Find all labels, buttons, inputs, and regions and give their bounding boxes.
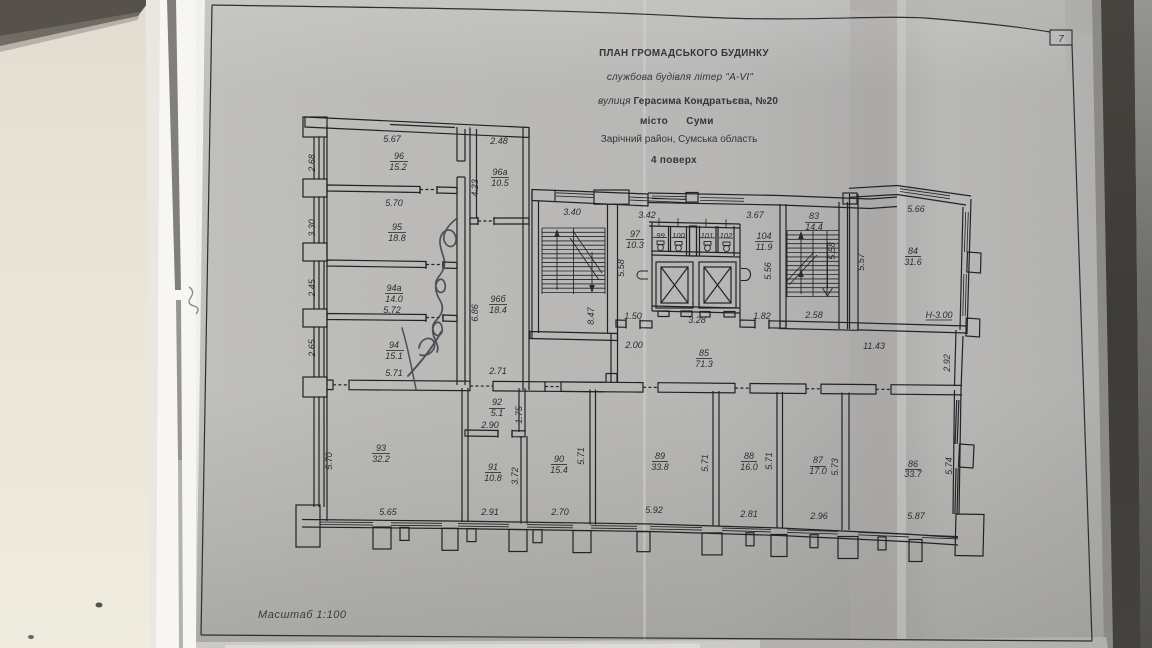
svg-text:5.56: 5.56 (763, 262, 773, 280)
svg-text:5.57: 5.57 (856, 252, 866, 271)
svg-text:99: 99 (656, 231, 665, 240)
svg-text:службова будівля літер "А-VI": службова будівля літер "А-VI" (607, 71, 754, 83)
svg-text:8.47: 8.47 (586, 306, 596, 325)
svg-text:5.58: 5.58 (616, 259, 626, 277)
svg-text:10.3: 10.3 (626, 240, 644, 250)
svg-text:93: 93 (376, 443, 386, 453)
svg-text:104: 104 (756, 231, 771, 241)
svg-text:5.92: 5.92 (645, 505, 663, 515)
svg-text:97: 97 (630, 229, 641, 239)
svg-text:2.00: 2.00 (624, 340, 643, 350)
svg-text:10.8: 10.8 (484, 473, 502, 483)
svg-text:Масштаб 1:100: Масштаб 1:100 (258, 609, 347, 621)
svg-text:5.58: 5.58 (827, 242, 837, 260)
svg-text:3.42: 3.42 (638, 210, 656, 220)
svg-text:5.71: 5.71 (385, 368, 403, 378)
svg-text:83: 83 (809, 211, 819, 221)
svg-text:17.0: 17.0 (809, 466, 827, 476)
svg-text:вулиця Герасима Кондратьєва, №: вулиця Герасима Кондратьєва, №20 (598, 96, 778, 107)
svg-text:2.90: 2.90 (480, 420, 499, 430)
svg-text:89: 89 (655, 451, 665, 461)
svg-text:5.1: 5.1 (491, 408, 504, 418)
svg-text:15.1: 15.1 (385, 351, 403, 361)
svg-text:1.50: 1.50 (624, 311, 642, 321)
svg-text:100: 100 (672, 231, 685, 240)
svg-text:88: 88 (744, 451, 754, 461)
svg-text:5.73: 5.73 (830, 458, 840, 476)
svg-text:15.2: 15.2 (389, 162, 407, 172)
svg-text:3.40: 3.40 (563, 207, 581, 217)
svg-text:94а: 94а (386, 283, 401, 293)
svg-text:5.67: 5.67 (383, 134, 402, 144)
svg-text:Н-3.00: Н-3.00 (925, 310, 952, 320)
svg-text:2.96: 2.96 (809, 511, 828, 521)
svg-text:5.87: 5.87 (907, 511, 926, 521)
svg-text:2.71: 2.71 (488, 366, 507, 376)
svg-text:5.70: 5.70 (324, 452, 334, 470)
svg-text:5.71: 5.71 (700, 454, 710, 472)
svg-text:2.58: 2.58 (804, 310, 823, 320)
svg-text:Зарічний район, Сумська област: Зарічний район, Сумська область (601, 133, 758, 145)
svg-text:5.70: 5.70 (385, 198, 403, 208)
svg-text:11.43: 11.43 (863, 341, 885, 351)
svg-text:102: 102 (720, 231, 733, 240)
svg-text:16.0: 16.0 (740, 462, 758, 472)
svg-text:84: 84 (908, 246, 918, 256)
svg-text:7: 7 (1058, 34, 1064, 45)
svg-text:3.72: 3.72 (510, 467, 520, 485)
svg-text:33.7: 33.7 (904, 469, 923, 479)
svg-text:11.9: 11.9 (756, 242, 773, 252)
svg-text:1.82: 1.82 (753, 311, 771, 321)
svg-text:2.92: 2.92 (942, 354, 952, 373)
svg-text:5.74: 5.74 (944, 457, 954, 475)
svg-text:5.71: 5.71 (764, 452, 774, 470)
svg-text:85: 85 (699, 348, 710, 358)
svg-text:33.8: 33.8 (651, 462, 669, 472)
svg-text:2.68: 2.68 (307, 154, 317, 173)
svg-text:2.91: 2.91 (480, 507, 499, 517)
svg-text:15.4: 15.4 (550, 465, 568, 475)
svg-text:90: 90 (554, 454, 564, 464)
svg-text:94: 94 (389, 340, 399, 350)
svg-text:4.23: 4.23 (470, 179, 480, 197)
svg-text:6.86: 6.86 (470, 304, 480, 322)
svg-text:95: 95 (392, 222, 403, 232)
svg-text:2.45: 2.45 (307, 278, 317, 298)
svg-text:87: 87 (813, 455, 824, 465)
svg-text:14.0: 14.0 (385, 294, 403, 304)
svg-text:71.3: 71.3 (695, 359, 713, 369)
svg-text:96а: 96а (492, 167, 507, 177)
svg-text:4 поверх: 4 поверх (651, 155, 697, 166)
svg-text:5.66: 5.66 (907, 204, 925, 214)
svg-text:92: 92 (492, 397, 502, 407)
svg-text:18.4: 18.4 (489, 305, 507, 315)
svg-text:ПЛАН ГРОМАДСЬКОГО БУДИНКУ: ПЛАН ГРОМАДСЬКОГО БУДИНКУ (599, 48, 769, 59)
svg-text:2.81: 2.81 (739, 509, 758, 519)
svg-text:5.71: 5.71 (576, 447, 586, 465)
svg-text:1.75: 1.75 (514, 405, 524, 424)
svg-text:101: 101 (701, 231, 714, 240)
svg-text:5.72: 5.72 (383, 305, 401, 315)
svg-text:3.28: 3.28 (688, 315, 706, 325)
svg-text:2.70: 2.70 (550, 507, 569, 517)
svg-text:2.48: 2.48 (489, 136, 508, 146)
svg-text:86: 86 (908, 459, 918, 469)
svg-text:3.67: 3.67 (746, 210, 765, 220)
svg-text:5.65: 5.65 (379, 507, 398, 517)
svg-text:32.2: 32.2 (372, 454, 390, 464)
svg-text:2.65: 2.65 (307, 338, 317, 358)
svg-text:96: 96 (394, 151, 404, 161)
svg-text:18.8: 18.8 (388, 233, 406, 243)
svg-text:31.6: 31.6 (904, 257, 922, 267)
svg-text:14.4: 14.4 (805, 222, 823, 232)
svg-text:91: 91 (488, 462, 498, 472)
svg-text:3.30: 3.30 (307, 219, 317, 237)
svg-text:96б: 96б (490, 294, 506, 304)
svg-text:10.5: 10.5 (491, 178, 510, 188)
